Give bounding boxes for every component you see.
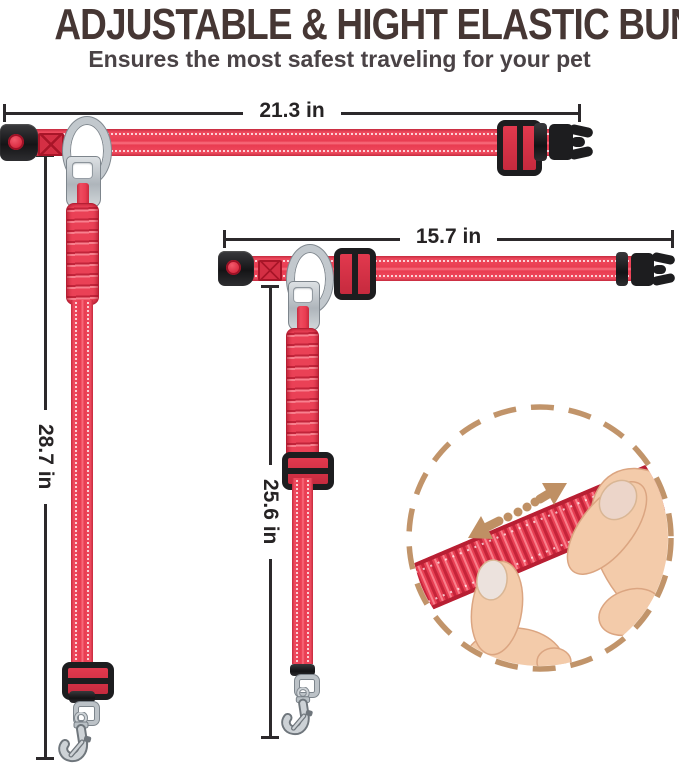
leash2-snap-hook-icon [281, 687, 323, 739]
inset-left-hand [462, 558, 571, 676]
triglide-center-bar [66, 678, 110, 684]
leash1-keeper [534, 123, 547, 161]
leash1-vertical-strap [71, 300, 93, 666]
triglide-center-bar [286, 468, 330, 474]
dimension-leash1-drop: 28.7 in [36, 154, 54, 760]
dimension-line [6, 112, 243, 115]
dimension-tick [36, 757, 54, 760]
leash2-buckle-prong-bottom [651, 273, 675, 287]
leash2-stitch-box [258, 260, 282, 281]
leash2-male-buckle [631, 253, 654, 286]
dimension-line [269, 288, 272, 465]
leash1-bungee-section [66, 203, 99, 305]
dimension-label-leash2-drop: 25.6 in [258, 465, 282, 558]
leash2-triglide-adjuster [334, 248, 376, 300]
leash2-seatbelt-tab-slot [293, 287, 313, 303]
dimension-line [269, 559, 272, 736]
dimension-leash2-length: 15.7 in [223, 230, 674, 248]
leash1-buckle-button [8, 134, 24, 150]
dimension-leash2-drop: 25.6 in [261, 285, 279, 739]
product-infographic: { "header": { "title": "ADJUSTABLE & HIG… [0, 0, 679, 766]
leash2-buckle-prong-top [651, 252, 675, 266]
leash2-buckle-prong-center [653, 265, 666, 274]
leash1-snap-hook-icon [58, 712, 102, 766]
bungee-stretch-inset [402, 400, 679, 676]
leash2-keeper [616, 252, 628, 286]
dimension-line [341, 112, 578, 115]
dimension-line [44, 504, 47, 757]
triglide-center-bar [352, 252, 358, 296]
dimension-line [497, 238, 671, 241]
leash2-buckle-button [226, 260, 241, 275]
dimension-tick [671, 230, 674, 248]
triglide-center-bar [517, 124, 523, 172]
dimension-line [226, 238, 400, 241]
dimension-line [44, 157, 47, 410]
dimension-label-leash2-length: 15.7 in [400, 225, 497, 249]
dimension-label-leash1-drop: 28.7 in [33, 410, 57, 503]
leash1-seatbelt-tab-slot [72, 162, 93, 179]
dimension-tick [261, 736, 279, 739]
dimension-label-leash1-length: 21.3 in [243, 99, 340, 123]
page-title: ADJUSTABLE & HIGHT ELASTIC BUNGEE [54, 2, 624, 48]
leash2-bungee-section [286, 328, 319, 466]
inset-right-hand [553, 445, 679, 655]
leash1-buckle-prong-center [571, 137, 585, 147]
dimension-tick [578, 104, 581, 122]
leash1-stitch-box [38, 133, 64, 156]
leash2-vertical-strap [292, 478, 313, 664]
page-subtitle: Ensures the most safest traveling for yo… [0, 46, 679, 73]
